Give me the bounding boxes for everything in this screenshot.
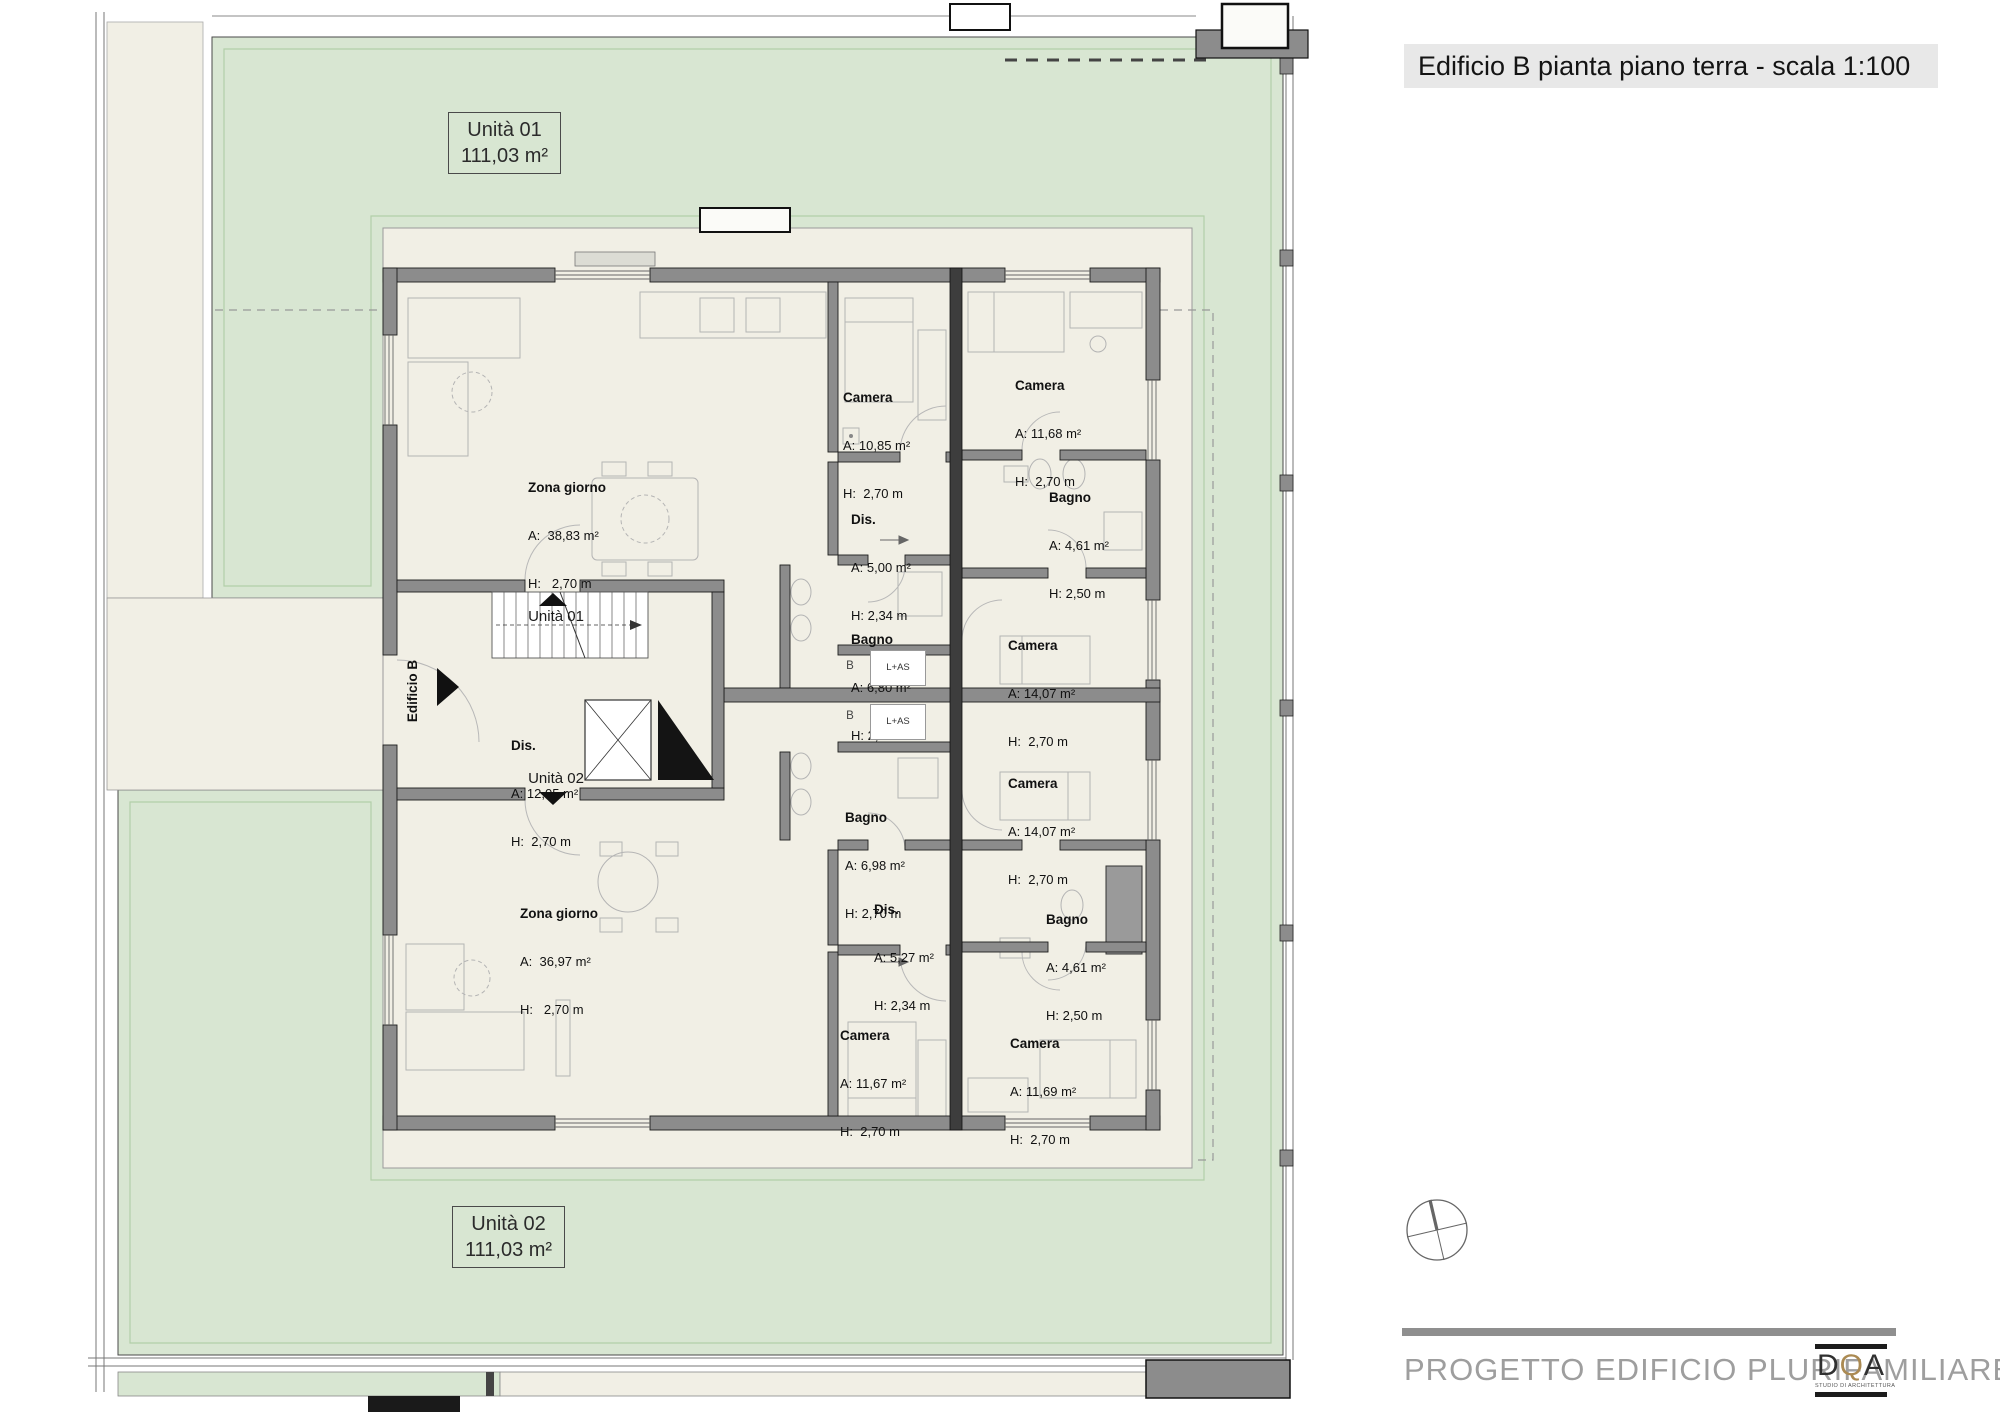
north-compass-icon [1407, 1200, 1467, 1260]
laundry-label-2: L+AS [870, 704, 926, 740]
unit2-garden-label: Unità 02 111,03 m² [452, 1206, 565, 1268]
building-entry-label: Edificio B [405, 635, 423, 747]
room-label-zona-giorno-1: Zona giorno A: 38,83 m² H: 2,70 m [528, 448, 606, 608]
bottom-street-strip [118, 1360, 1290, 1412]
unit2-entry-label: Unità 02 [514, 770, 598, 787]
laundry-label-1: L+AS [870, 650, 926, 686]
unit2-area: 111,03 m² [465, 1239, 552, 1261]
spine-wall [950, 268, 962, 1130]
floor-plan-drawing [0, 0, 2000, 1414]
logo-letter-a: A [1864, 1349, 1885, 1382]
logo-letter-d: D [1817, 1349, 1840, 1382]
floor-plan-page: Edificio B pianta piano terra - scala 1:… [0, 0, 2000, 1414]
room-label-zona-giorno-2: Zona giorno A: 36,97 m² H: 2,70 m [520, 874, 598, 1034]
room-label-bagno-461-top: Bagno A: 4,61 m² H: 2,50 m [1049, 458, 1109, 618]
room-label-camera-1407-top: Camera A: 14,07 m² H: 2,70 m [1008, 606, 1075, 766]
logo-subtitle: STUDIO DI ARCHITETTURA [1815, 1382, 1887, 1392]
unit1-name: Unità 01 [467, 119, 542, 141]
footer-rule [1402, 1328, 1896, 1336]
dqa-logo: DQA STUDIO DI ARCHITETTURA [1815, 1344, 1887, 1397]
logo-letter-q: Q [1840, 1349, 1864, 1382]
drawing-title: Edificio B pianta piano terra - scala 1:… [1404, 44, 1938, 88]
logo-bottom-bar [1815, 1392, 1887, 1397]
room-label-camera-1167: Camera A: 11,67 m² H: 2,70 m [840, 996, 906, 1156]
boiler-label-1: B [838, 660, 862, 672]
sidewalk-strip [107, 22, 203, 598]
unit1-area: 111,03 m² [461, 145, 548, 167]
entry-corridor [107, 598, 383, 790]
unit1-entry-label: Unità 01 [514, 608, 598, 625]
unit2-name: Unità 02 [471, 1213, 546, 1235]
unit1-garden-label: Unità 01 111,03 m² [448, 112, 561, 174]
boiler-label-2: B [838, 710, 862, 722]
room-label-camera-1169: Camera A: 11,69 m² H: 2,70 m [1010, 1004, 1076, 1164]
project-title: PROGETTO EDIFICIO PLURIFAMILIARE [1404, 1352, 2000, 1388]
